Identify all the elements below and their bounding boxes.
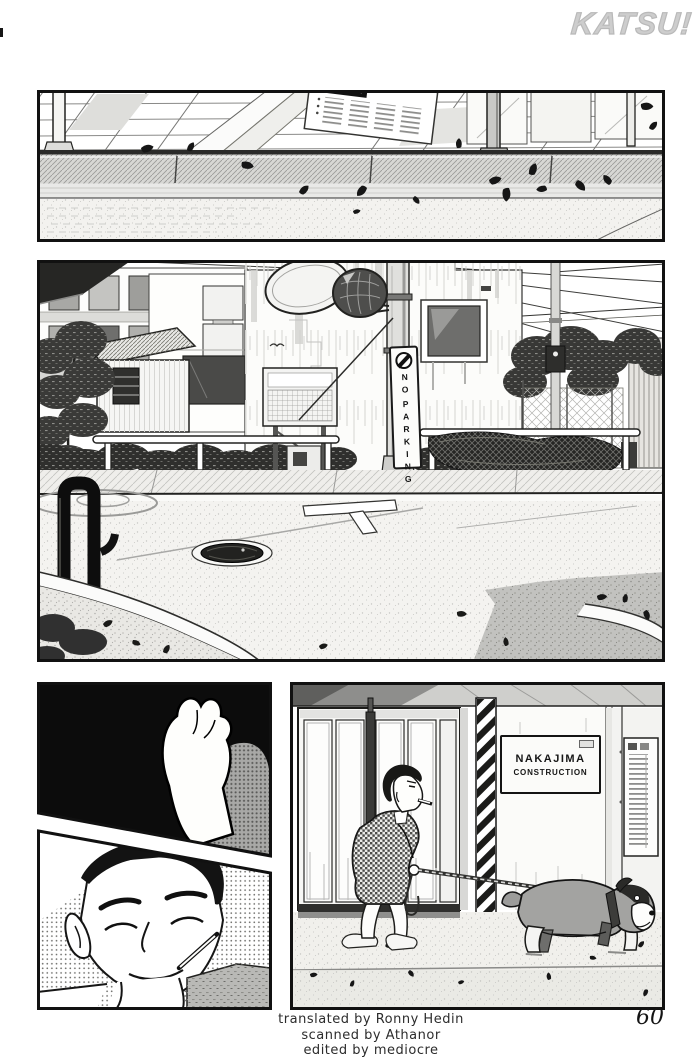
scanlation-credits: translated by Ronny Hedin scanned by Ath…	[201, 1012, 541, 1059]
magazine-logo: KATSU!	[558, 6, 693, 42]
collar	[394, 810, 408, 824]
panel-5-man-walking-dog	[290, 682, 665, 1010]
no-parking-sign: NO PARKING	[389, 346, 422, 470]
road-strip	[39, 198, 665, 240]
construction-sign-line2: CONSTRUCTION	[513, 768, 587, 777]
dog-nose	[649, 911, 655, 916]
construction-sign-line1: NAKAJIMA	[515, 753, 585, 765]
panel-4-smiling-face	[37, 830, 271, 1009]
credit-scanned: scanned by Athanor	[201, 1028, 541, 1044]
manhole	[192, 540, 272, 566]
credit-translated: translated by Ronny Hedin	[201, 1012, 541, 1028]
man-hand	[409, 865, 419, 875]
scan-speck	[0, 28, 3, 37]
sign-tab	[579, 740, 594, 748]
no-parking-line2: PARKING	[401, 399, 413, 487]
step-edge	[39, 150, 663, 155]
permit-board	[620, 738, 659, 856]
curb-band	[39, 155, 663, 198]
panel-3-4-group	[37, 682, 272, 1010]
sidewalk	[39, 470, 663, 501]
road	[37, 483, 665, 662]
man-eye	[409, 786, 415, 787]
no-parking-line1: NO	[400, 372, 409, 397]
panel-1-sidewalk-leaves	[37, 90, 665, 242]
dog-eye	[635, 896, 640, 901]
panel-2-street-corner	[37, 260, 665, 662]
nakajima-construction-sign: NAKAJIMA CONSTRUCTION	[500, 735, 601, 794]
page-number: 60	[630, 1005, 670, 1030]
credit-edited: edited by mediocre	[201, 1043, 541, 1059]
panel-3-paw-closeup	[39, 684, 271, 857]
hazard-striped-pole	[476, 698, 496, 942]
no-parking-circle-icon	[395, 352, 413, 370]
